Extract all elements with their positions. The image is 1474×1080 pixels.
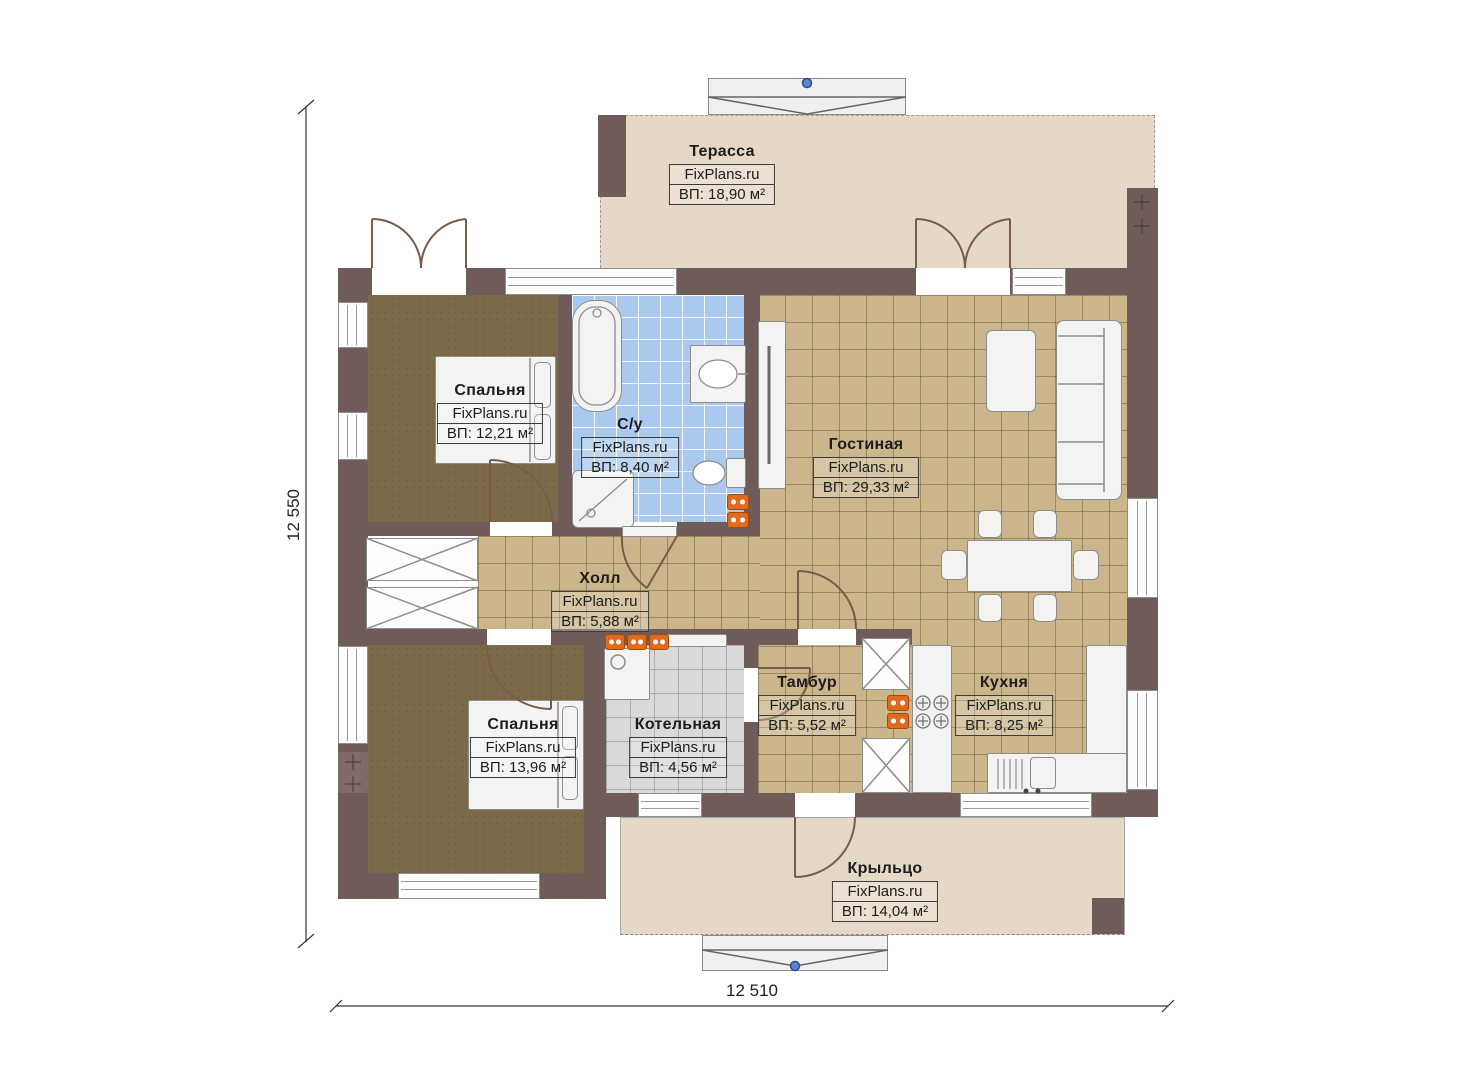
room-area: ВП: 14,04 м² [833, 902, 937, 921]
window-bathroom-north [505, 268, 677, 295]
room-name: С/у [581, 416, 679, 434]
power-socket-icon [649, 634, 669, 650]
dining-chair [978, 510, 1002, 538]
foundation-hatch-block [338, 752, 368, 793]
wardrobe-right-1 [862, 638, 910, 690]
watermark: FixPlans.ru [471, 738, 575, 758]
kitchen-counter-left [912, 645, 952, 793]
room-name: Гостиная [813, 436, 919, 454]
terrace-steps [708, 78, 906, 115]
room-name: Терасса [669, 143, 775, 161]
sofa [1056, 320, 1122, 500]
window-living-east [1127, 498, 1158, 598]
room-label-bathroom: С/у FixPlans.ru ВП: 8,40 м² [581, 416, 679, 478]
room-info-box: FixPlans.ru ВП: 8,25 м² [955, 695, 1053, 736]
room-info-box: FixPlans.ru ВП: 18,90 м² [669, 164, 775, 205]
wall-hall-north [362, 522, 760, 536]
room-info-box: FixPlans.ru ВП: 14,04 м² [832, 881, 938, 922]
room-area: ВП: 8,25 м² [956, 716, 1052, 735]
room-area: ВП: 5,52 м² [759, 716, 855, 735]
room-area: ВП: 8,40 м² [582, 458, 678, 477]
dining-chair [1033, 594, 1057, 622]
wall-bedroom2-boiler [584, 629, 606, 897]
room-label-kitchen: Кухня FixPlans.ru ВП: 8,25 м² [955, 674, 1053, 736]
entrance-door-opening [795, 793, 855, 817]
kitchen-counter-right [1086, 645, 1127, 755]
power-socket-icon [605, 634, 625, 650]
room-name: Спальня [437, 382, 543, 400]
watermark: FixPlans.ru [956, 696, 1052, 716]
dimension-label-bottom: 12 510 [726, 981, 778, 1001]
power-socket-icon [727, 512, 749, 528]
room-area: ВП: 13,96 м² [471, 758, 575, 777]
room-area: ВП: 29,33 м² [814, 478, 918, 497]
room-name: Крыльцо [832, 860, 938, 878]
watermark: FixPlans.ru [833, 882, 937, 902]
dimension-line-bottom [330, 1000, 1174, 1012]
room-area: ВП: 4,56 м² [630, 758, 726, 777]
room-area: ВП: 12,21 м² [438, 424, 542, 443]
room-label-living-room: Гостиная FixPlans.ru ВП: 29,33 м² [813, 436, 919, 498]
wall-terrace-stub [598, 115, 626, 197]
window-bedroom2-west [338, 646, 368, 744]
room-name: Холл [551, 570, 649, 588]
power-socket-icon [887, 713, 909, 729]
room-area: ВП: 5,88 м² [552, 612, 648, 631]
watermark: FixPlans.ru [814, 458, 918, 478]
bathtub [572, 300, 622, 412]
door-opening-bedroom2 [487, 629, 551, 645]
room-name: Спальня [470, 716, 576, 734]
bathroom-vanity [690, 345, 746, 403]
coffee-table [986, 330, 1036, 412]
shower-tray [572, 470, 634, 528]
room-label-terrace: Терасса FixPlans.ru ВП: 18,90 м² [669, 143, 775, 205]
dining-chair [1033, 510, 1057, 538]
room-info-box: FixPlans.ru ВП: 12,21 м² [437, 403, 543, 444]
room-info-box: FixPlans.ru ВП: 4,56 м² [629, 737, 727, 778]
door-swing-bedroom1-exterior [372, 219, 466, 268]
window-kitchen-east [1127, 690, 1158, 790]
watermark: FixPlans.ru [670, 165, 774, 185]
watermark: FixPlans.ru [630, 738, 726, 758]
door-opening-living-terrace [916, 268, 1010, 295]
wall-bedroom1-bathroom [558, 295, 572, 536]
room-info-box: FixPlans.ru ВП: 5,52 м² [758, 695, 856, 736]
bathroom-door-sill [622, 526, 677, 537]
watermark: FixPlans.ru [759, 696, 855, 716]
window-bedroom1-west-2 [338, 412, 368, 460]
watermark: FixPlans.ru [552, 592, 648, 612]
room-name: Котельная [629, 716, 727, 734]
window-bedroom1-west-1 [338, 302, 368, 348]
door-opening-bedroom1-terraceside [372, 268, 466, 295]
room-label-hall: Холл FixPlans.ru ВП: 5,88 м² [551, 570, 649, 632]
room-label-vestibule: Тамбур FixPlans.ru ВП: 5,52 м² [758, 674, 856, 736]
wardrobe-right-2 [862, 738, 910, 793]
door-opening-bedroom1 [490, 522, 552, 536]
power-socket-icon [727, 494, 749, 510]
room-info-box: FixPlans.ru ВП: 5,88 м² [551, 591, 649, 632]
window-bedroom2-south [398, 873, 540, 899]
room-name: Тамбур [758, 674, 856, 692]
room-label-bedroom-1: Спальня FixPlans.ru ВП: 12,21 м² [437, 382, 543, 444]
room-info-box: FixPlans.ru ВП: 13,96 м² [470, 737, 576, 778]
porch-steps [702, 935, 888, 971]
dining-chair [1073, 550, 1099, 580]
tv-cabinet [758, 321, 786, 489]
room-info-box: FixPlans.ru ВП: 8,40 м² [581, 437, 679, 478]
room-label-boiler-room: Котельная FixPlans.ru ВП: 4,56 м² [629, 716, 727, 778]
window-boiler-south [638, 793, 702, 817]
room-name: Кухня [955, 674, 1053, 692]
power-socket-icon [887, 695, 909, 711]
power-socket-icon [627, 634, 647, 650]
watermark: FixPlans.ru [438, 404, 542, 424]
boiler-unit [604, 648, 650, 700]
kitchen-counter-bottom [987, 753, 1127, 793]
porch-pillar [1092, 898, 1124, 934]
door-opening-boiler [744, 668, 758, 722]
dining-table [967, 540, 1072, 592]
room-area: ВП: 18,90 м² [670, 185, 774, 204]
dimension-label-left: 12 550 [284, 489, 304, 541]
door-opening-vestibule-north [798, 629, 856, 645]
dining-chair [941, 550, 967, 580]
window-living-north [1012, 268, 1066, 295]
watermark: FixPlans.ru [582, 438, 678, 458]
kitchen-sink-basin [1030, 757, 1056, 789]
wardrobe-left-2 [366, 587, 478, 629]
toilet-cistern [726, 458, 746, 488]
room-label-bedroom-2: Спальня FixPlans.ru ВП: 13,96 м² [470, 716, 576, 778]
wardrobe-left-1 [366, 538, 478, 581]
floor-plan: Терасса FixPlans.ru ВП: 18,90 м² Спальня… [0, 0, 1474, 1080]
wall-left [338, 268, 368, 899]
window-kitchen-south [960, 793, 1092, 817]
dining-chair [978, 594, 1002, 622]
room-label-porch: Крыльцо FixPlans.ru ВП: 14,04 м² [832, 860, 938, 922]
boiler-shelf [665, 634, 727, 647]
room-info-box: FixPlans.ru ВП: 29,33 м² [813, 457, 919, 498]
